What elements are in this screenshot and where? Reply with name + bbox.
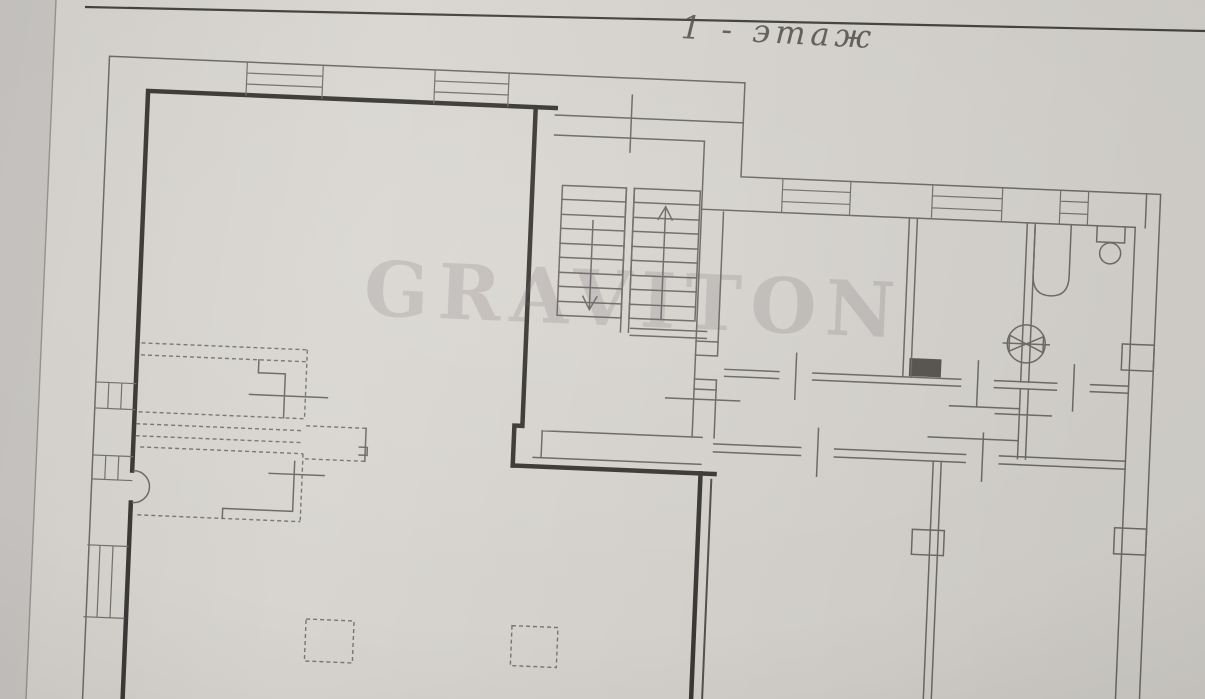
corridor-niche-lines <box>928 405 1019 441</box>
corridor-bottom-wall-a <box>714 444 1126 461</box>
pilaster-2 <box>1121 344 1154 371</box>
right-band-inner-line <box>702 209 1136 227</box>
corridor-bottom-wall-b <box>713 452 1125 469</box>
window-left-2 <box>92 455 133 481</box>
stair-right-wall-outer <box>714 212 723 438</box>
window-tick <box>630 95 632 152</box>
window-right-2 <box>931 185 1002 222</box>
dashed-column-1 <box>304 619 354 663</box>
right-wall-inner-line <box>1113 227 1135 699</box>
plumbing-fixtures <box>1002 222 1125 367</box>
dashed-annex-box <box>305 426 366 461</box>
dashed-room-1 <box>139 343 308 419</box>
dashed-partitions <box>127 343 570 672</box>
dashed-room-2-door-line <box>269 473 324 475</box>
fan-symbol-bowtie <box>1003 335 1050 353</box>
exterior-walls <box>82 56 1165 699</box>
stair-door-leaf <box>666 398 740 401</box>
left-thick-wall-lower <box>122 503 131 699</box>
center-thick-wall-horizontal <box>513 466 715 474</box>
window-top-1 <box>246 62 323 98</box>
toilet-partition-wall <box>1021 223 1036 382</box>
center-wall-second-line <box>701 479 712 699</box>
sheet-frame-line <box>85 7 1205 31</box>
dashed-room-2-inner <box>222 458 294 521</box>
corridor-top-wall-b <box>725 376 1129 393</box>
window-right-3 <box>1059 190 1088 225</box>
window-top-2 <box>434 70 509 106</box>
right-band-divider <box>1145 194 1146 228</box>
dashed-room-1-door-line <box>249 394 327 397</box>
corridor-divider-wall <box>1017 389 1028 459</box>
stair-top-wall-inner-line <box>555 135 705 141</box>
scanned-floor-plan-photo: 1 - этаж GRAVITON <box>0 0 1205 699</box>
photo-background <box>0 0 56 699</box>
dashed-room-1-closet <box>257 360 286 418</box>
stair-right-wall-inner <box>692 141 704 437</box>
hall-right-thick-wall <box>513 107 536 466</box>
wall-columns <box>911 335 1154 564</box>
bath-column-fixture <box>1032 223 1071 296</box>
bottom-room-divider-wall <box>921 461 941 699</box>
pilaster-1 <box>911 529 944 555</box>
center-thick-wall-vertical <box>690 473 701 699</box>
pilaster-3 <box>1114 528 1147 555</box>
window-left-3 <box>84 545 128 619</box>
floor-plan-drawing <box>0 0 1205 699</box>
window-left-1 <box>95 382 136 410</box>
dashed-passage-lines <box>136 424 304 443</box>
stair-down-arrow <box>582 220 600 310</box>
window-right-1 <box>782 179 851 216</box>
dashed-column-2 <box>510 626 558 668</box>
stair-up-arrow <box>654 206 673 319</box>
corridor-door-leaf <box>995 414 1051 416</box>
interior-partition-walls <box>702 210 1136 699</box>
stair-top-wall-line <box>555 115 743 123</box>
hall-top-left-thick-wall <box>132 91 556 488</box>
windows <box>84 56 1093 658</box>
doors <box>133 471 150 504</box>
stair-vestibule-wall <box>533 430 702 464</box>
exterior-outer-line <box>82 56 1165 699</box>
load-bearing-walls <box>122 91 951 699</box>
staircase <box>533 135 750 466</box>
stair-landing-lines <box>630 328 706 338</box>
entrance-door-arc <box>133 471 150 504</box>
floor-plan <box>80 56 1165 699</box>
room-divider-wall <box>903 218 918 377</box>
wall-corner-block <box>909 358 942 377</box>
stair-door-jambs <box>694 341 718 390</box>
toilet-bowl <box>1099 242 1121 264</box>
dashed-annex-right-edge <box>359 428 368 461</box>
toilet-tank <box>1097 226 1126 243</box>
